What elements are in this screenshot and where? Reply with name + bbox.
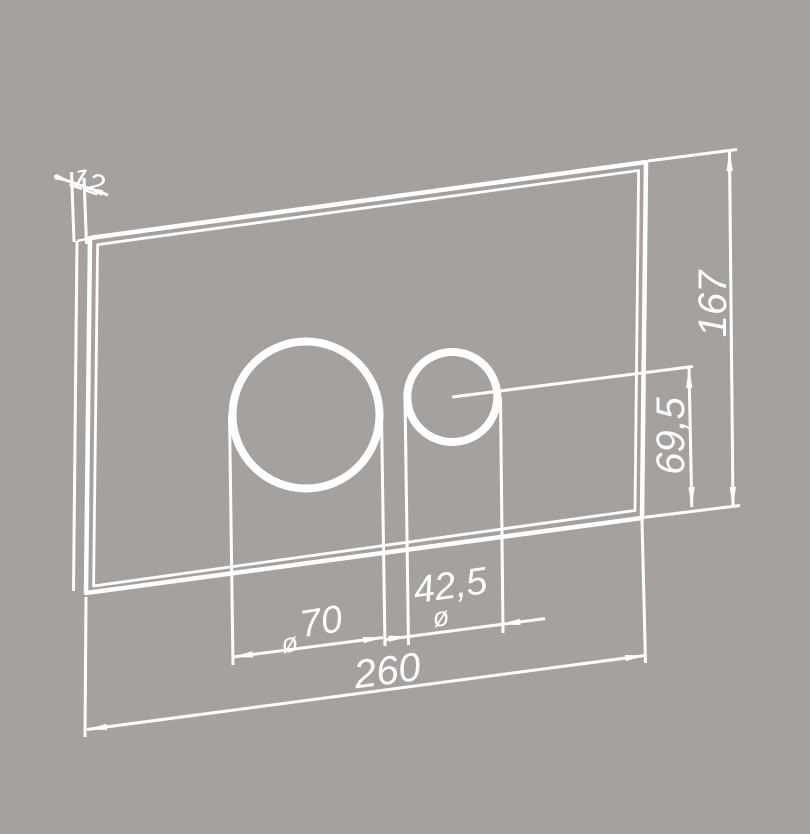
large-flush-button-circle: [233, 342, 380, 489]
arrowhead-width-right: [625, 655, 645, 661]
ext-line-small-diameter-left: [405, 397, 409, 645]
flush-plate-dimension-drawing: 12 167 69,5 ø 70 42,5 ø 260: [0, 0, 810, 834]
arrowhead-height-bottom: [730, 487, 736, 507]
ext-line-small-diameter-right: [501, 397, 504, 633]
ext-line-bottom-right: [643, 506, 740, 518]
ext-line-height-top: [648, 150, 737, 162]
dim-line-small-diameter: [386, 619, 545, 640]
width-dimension-label: 260: [350, 645, 423, 697]
ext-line-width-right: [642, 520, 646, 663]
plate-outline-group: [74, 162, 647, 593]
arrowhead-small-diameter-left: [388, 636, 408, 642]
large-diameter-symbol: ø: [279, 627, 300, 659]
arrowhead-height-top: [727, 151, 733, 171]
height-dimension-label: 167: [691, 269, 735, 337]
ext-line-large-diameter-left: [230, 415, 234, 665]
ext-line-large-diameter-right: [382, 415, 386, 646]
large-diameter-dimension-label: 70: [297, 598, 345, 646]
technical-drawing-canvas: 12 167 69,5 ø 70 42,5 ø 260: [0, 0, 810, 834]
plate-back-edge: [74, 241, 78, 591]
arrowhead-width-left: [87, 724, 107, 730]
arrowhead-large-diameter-right: [363, 637, 383, 643]
arrowhead-large-diameter-left: [233, 651, 253, 657]
center-offset-dimension-label: 69,5: [649, 396, 693, 475]
arrowhead-center-offset-bottom: [688, 487, 694, 507]
ext-line-width-left: [85, 597, 86, 737]
small-diameter-dimension-label: 42,5: [411, 560, 491, 612]
arrowhead-center-offset-top: [686, 368, 692, 388]
